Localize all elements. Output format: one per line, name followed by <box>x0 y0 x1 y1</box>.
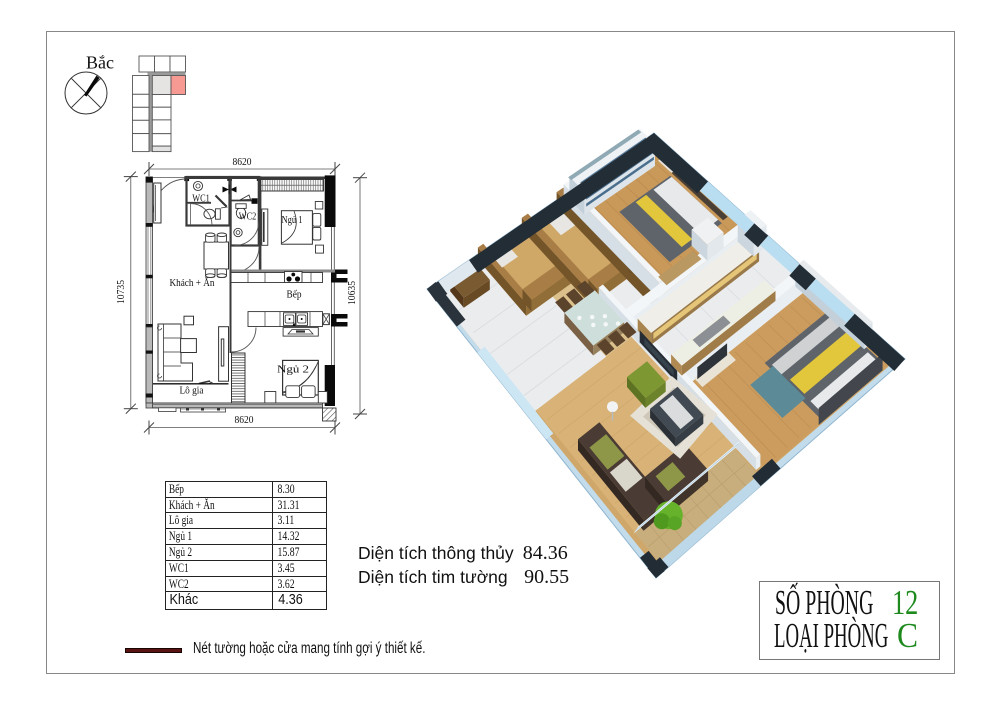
svg-text:Lô gia: Lô gia <box>180 386 204 397</box>
svg-text:8620: 8620 <box>235 415 254 426</box>
svg-text:Bếp: Bếp <box>287 290 302 301</box>
svg-text:Ngủ 2: Ngủ 2 <box>277 364 309 376</box>
svg-text:WC2: WC2 <box>239 212 257 223</box>
svg-text:8620: 8620 <box>233 157 252 168</box>
svg-text:Bắc: Bắc <box>86 53 114 73</box>
svg-text:Ngủ 1: Ngủ 1 <box>282 215 303 226</box>
svg-text:10635: 10635 <box>347 281 358 305</box>
svg-text:10735: 10735 <box>116 280 127 304</box>
svg-text:Khách + Ăn: Khách + Ăn <box>170 277 215 289</box>
